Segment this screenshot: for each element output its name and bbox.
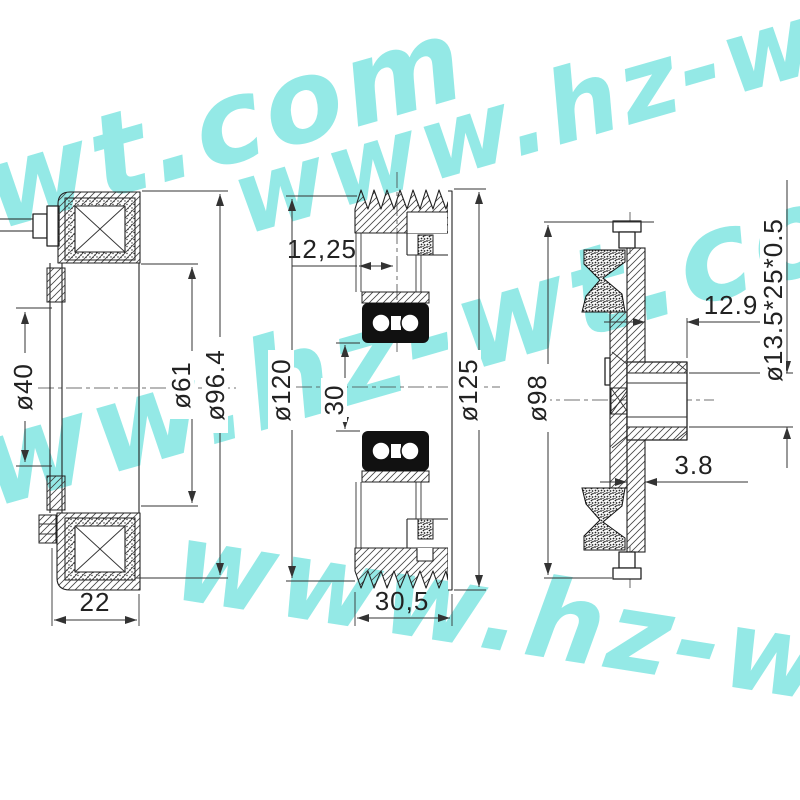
coil-winding-bottom [75, 526, 125, 572]
hub-boss [611, 388, 629, 414]
dim-label-pulley-outer-dia: ø125 [453, 358, 483, 421]
dim-label-pulley-width: 30,5 [375, 586, 430, 616]
bearing-top [362, 303, 429, 343]
flange-tab [39, 515, 56, 543]
pulley-right-face [448, 191, 452, 590]
dim-label-coil-outer: ø96.4 [200, 349, 230, 421]
compressor-clutch-drawing: www.hz-wt.com www.hz-wt.com www.hz-wt.co… [0, 0, 800, 800]
watermark-text: www.hz-wt.com [166, 497, 800, 785]
dim-label-coil-inner: ø61 [166, 361, 196, 409]
dim-bearing-offset: 12,25 [287, 234, 393, 266]
dim-label-plate-thickness: 3.8 [674, 450, 713, 480]
dim-label-bearing-offset: 12,25 [287, 234, 357, 264]
coil-winding-top [75, 206, 125, 252]
dim-label-bearing-bore: 30 [319, 385, 349, 416]
dim-label-plate-dia: ø98 [522, 374, 552, 422]
rubber-damper-bottom [582, 488, 625, 550]
bearing-boss-top [362, 292, 429, 303]
bearing-bottom [362, 431, 429, 471]
hub-sleeve [627, 362, 687, 440]
dim-label-coil-bore: ø40 [8, 363, 38, 411]
coil-housing-top [58, 192, 140, 263]
damper-pin-top [418, 235, 433, 255]
dim-label-hub-depth: 12.9 [704, 290, 759, 320]
dim-label-spline-spec: ø13.5*25*0.5 [758, 218, 788, 382]
dim-label-groove-dia: ø120 [266, 358, 296, 421]
dim-label-coil-depth: 22 [80, 587, 111, 617]
bearing-boss-bottom [362, 471, 429, 482]
damper-pin-bottom [418, 519, 433, 539]
technical-drawing-page: www.hz-wt.com www.hz-wt.com www.hz-wt.co… [0, 0, 800, 800]
coil-housing-bottom [57, 513, 140, 590]
